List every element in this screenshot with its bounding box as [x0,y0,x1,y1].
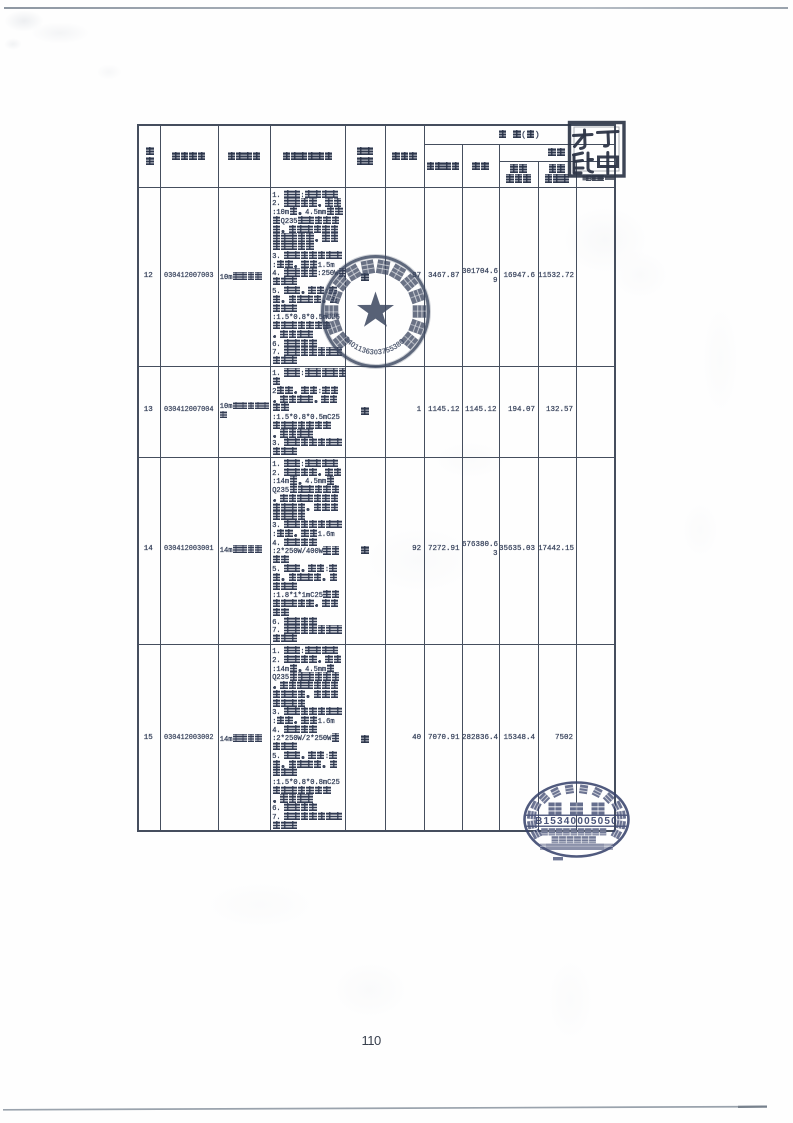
svg-text:B15340005050: B15340005050 [535,816,618,827]
